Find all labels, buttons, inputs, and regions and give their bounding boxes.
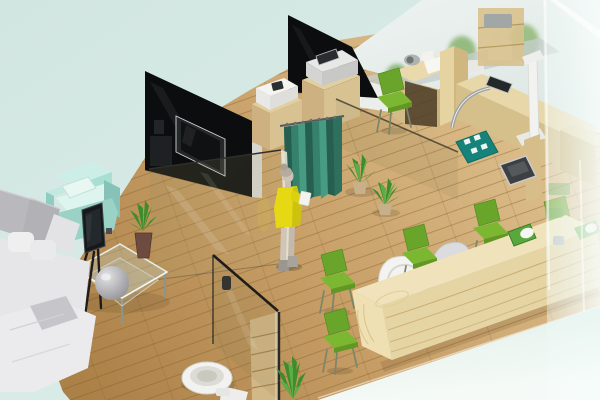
gray-ball-decor <box>95 266 129 300</box>
glass-door-handle <box>222 276 231 290</box>
scene-render <box>0 0 600 400</box>
plant-pot-2 <box>378 204 392 215</box>
person-leg-right <box>288 227 295 258</box>
plant-pot-1 <box>353 182 367 194</box>
back-cabinet <box>478 8 524 66</box>
office-3d-render <box>0 0 600 400</box>
person-reflection <box>257 196 271 232</box>
person-leg-left <box>280 228 287 262</box>
